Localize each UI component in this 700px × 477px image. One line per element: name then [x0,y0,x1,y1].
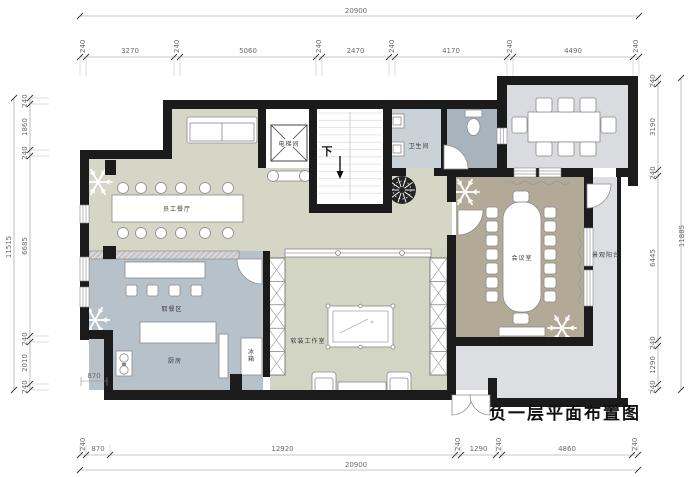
wall-segment [104,330,113,400]
dim-label: 240 [649,74,657,87]
bench-with-ends [268,171,311,182]
label-kitchen: 厨房 [168,357,182,365]
window-icon [584,228,593,266]
chair [513,313,529,324]
wall-segment [104,390,452,400]
wall-segment [80,330,106,339]
wall-segment [163,100,507,109]
floor-plan-canvas: 2403270240506024024702404170240449024020… [0,0,700,477]
wall-segment [383,100,392,212]
wall-segment [447,168,456,202]
label-stair-down: 下 [322,145,333,158]
chair [147,285,158,296]
dim-label: 240 [21,332,29,345]
dim-label: 12920 [271,445,293,453]
window-icon [80,287,89,307]
exit-door-left [452,395,472,415]
chair [536,142,552,156]
wall-segment [80,150,89,340]
studio-cabinet-right [430,258,447,375]
dim-label: 3270 [121,47,139,55]
dim-chain-left: 24018602406685240201024011515 [5,94,49,393]
canteen-sofa [187,117,257,143]
chair [136,183,147,194]
dim-label: 4490 [564,47,582,55]
stove [116,351,132,376]
dim-label: 240 [21,94,29,107]
dim-label: 870 [91,445,104,453]
chair [544,263,556,274]
label-meeting-room: 会议室 [511,254,532,262]
wall-segment [258,100,266,168]
wall-segment [450,337,593,346]
window-icon [514,168,536,177]
wall-segment [386,168,406,176]
dim-label: 240 [79,438,87,451]
chair [156,228,167,239]
wall-segment [309,204,392,213]
page-title: 负一层平面布置图 [489,403,641,424]
window-icon [80,205,89,223]
chair [200,183,211,194]
billiard-table [326,304,395,349]
chair [558,98,574,112]
dim-total-label: 11515 [5,236,13,258]
dining-table [528,112,600,142]
chair [544,221,556,232]
chair [580,98,596,112]
dim-label: 2010 [21,354,29,372]
dim-label: 240 [649,336,657,349]
chair [191,285,202,296]
chair [486,291,498,302]
chair [558,142,574,156]
chair [486,249,498,260]
potted-plant-icon [388,176,416,204]
chair [580,142,596,156]
chair [486,235,498,246]
label-meal-pickup: 取餐区 [161,305,182,313]
wall-segment [497,76,507,177]
dim-chain-right: 24031902406445240129024011885 [648,74,686,393]
studio-cabinet-left [268,258,285,375]
dim-label: 240 [79,40,87,53]
chair [536,98,552,112]
dim-label: 3190 [649,118,657,136]
studio-window-band [285,249,431,257]
label-washroom: 卫生间 [408,142,429,150]
window-icon [539,168,561,177]
chair [486,221,498,232]
kitchen-counter [140,322,216,343]
interior-dim-label: 870 [87,372,100,380]
chair [486,277,498,288]
chair [223,228,234,239]
chair [513,191,529,202]
dim-label: 240 [631,438,639,451]
chair [126,285,137,296]
pickup-counter [125,262,205,278]
chair [200,228,211,239]
dim-label: 240 [388,40,396,53]
chair [544,207,556,218]
label-balcony: 景观阳台 [592,251,620,259]
chair [156,183,167,194]
label-staff-canteen: 员工餐厅 [163,205,191,213]
chair [118,183,129,194]
dim-label: 240 [21,380,29,393]
window-icon [584,270,593,306]
chair [136,228,147,239]
chair [118,228,129,239]
dim-label: 240 [632,40,640,53]
dim-label: 6685 [21,237,29,255]
dim-label: 240 [454,438,462,451]
dim-label: 4170 [442,47,460,55]
dim-label: 240 [495,438,503,451]
window-icon [80,257,89,281]
dim-label: 240 [506,40,514,53]
dim-label: 5060 [239,47,257,55]
dim-total-label: 20900 [345,7,367,15]
chair [544,235,556,246]
wall-segment [105,160,116,175]
label-fridge: 冰箱 [248,348,255,363]
chair [176,228,187,239]
chair [544,277,556,288]
chair [176,183,187,194]
wall-segment [447,235,456,400]
chair [486,207,498,218]
dim-label: 240 [649,380,657,393]
chair [512,117,527,133]
chair [544,249,556,260]
window-icon [497,128,507,144]
dim-label: 240 [173,40,181,53]
wall-segment [80,150,172,159]
exit-door-right [470,395,490,415]
dim-label: 240 [649,166,657,179]
dim-total-label: 20900 [345,461,367,469]
chair [544,291,556,302]
label-studio: 软装工作室 [290,337,325,345]
dim-label: 1860 [21,118,29,136]
dim-label: 4860 [558,445,576,453]
wall-segment [617,177,621,407]
dim-chain-bottom: 240870129202401290240486024020900 [77,438,641,473]
dim-label: 2470 [347,47,365,55]
wall-segment [103,246,116,259]
balcony-floor-bottom2 [488,346,617,399]
label-elevator: 电梯间 [278,140,299,148]
dim-label: 1290 [649,356,657,374]
dim-total-label: 11885 [678,225,686,247]
chair [223,183,234,194]
meeting-console [499,327,545,336]
dim-chain-top: 2403270240506024024702404170240449024020… [77,7,642,76]
floor-plan-page: 2403270240506024024702404170240449024020… [0,0,700,477]
dim-label: 240 [315,40,323,53]
wall-segment [497,76,638,85]
dim-label: 1290 [470,445,488,453]
chair [169,285,180,296]
chair [486,263,498,274]
wall-segment [616,168,638,177]
wall-segment [263,251,270,377]
dim-label: 240 [21,146,29,159]
dim-label: 6445 [649,249,657,267]
wall-segment [309,100,317,212]
wall-segment [230,374,242,390]
chair [601,117,616,133]
kitchen-counter-right [219,334,228,378]
